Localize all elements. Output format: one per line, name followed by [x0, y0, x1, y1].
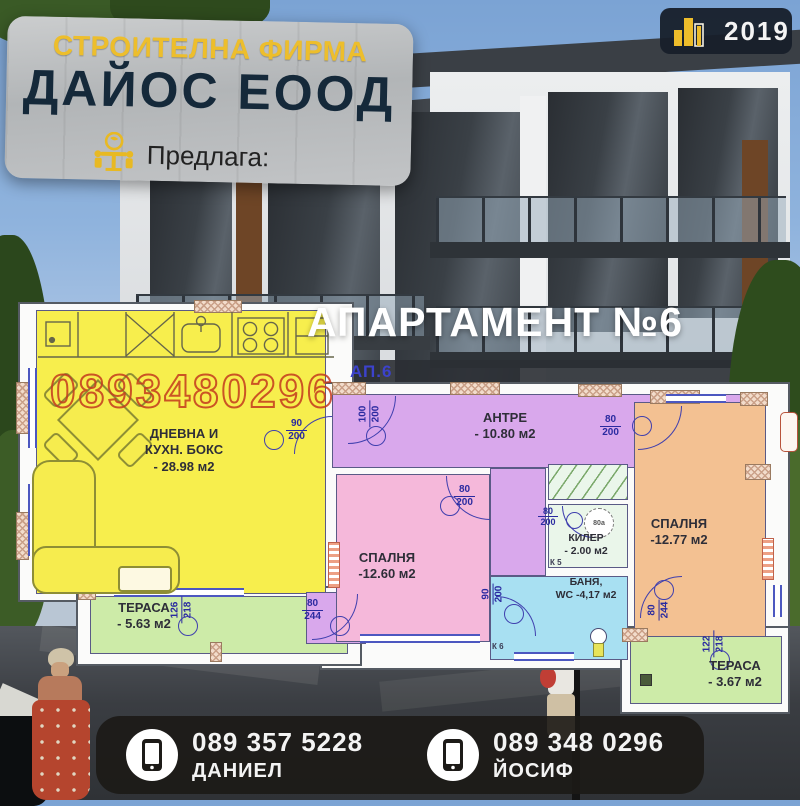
- label-bedroom-2: СПАЛНЯ-12.77 м2: [614, 516, 744, 549]
- wall-pier: [622, 628, 648, 642]
- wall-pier: [578, 384, 622, 397]
- label-hall: АНТРЕ- 10.80 м2: [440, 410, 570, 443]
- label-terrace-left: ТЕРАСА- 5.63 м2: [74, 600, 214, 633]
- floor-plan: 80а 100200 90200 80200 80200 80200 90200…: [14, 298, 794, 714]
- offers-label: Предлага:: [147, 139, 270, 173]
- terrace-planter: [210, 642, 222, 662]
- lamp-symbol: [440, 496, 460, 516]
- builders-crane-icon: [90, 132, 137, 177]
- ac-unit: [780, 412, 798, 452]
- dim-closet-door: 80200: [538, 506, 558, 528]
- lamp-symbol: [264, 430, 284, 450]
- year-badge: 2019: [660, 8, 792, 54]
- label-living: ДНЕВНА ИКУХН. БОКС- 28.98 м2: [104, 426, 264, 475]
- lamp-symbol: [632, 416, 652, 436]
- wall-pier: [745, 464, 771, 480]
- phone-number: 089 348 0296: [493, 728, 664, 757]
- lamp-symbol: [654, 580, 674, 600]
- phone-icon: [427, 729, 479, 781]
- apartment-title: АПАРТАМЕНТ №6: [258, 299, 732, 346]
- dim-terrace2-door: 80244: [647, 599, 671, 620]
- lamp-symbol: [566, 512, 583, 529]
- watermark-phone: 0893480296: [50, 364, 336, 418]
- contact-daniel: 089 357 5228 ДАНИЕЛ: [126, 728, 363, 782]
- label-terrace-right: ТЕРАСА- 3.67 м2: [670, 658, 800, 691]
- label-bath: БАНЯ,WC -4,17 м2: [530, 576, 642, 602]
- radiator: [762, 538, 774, 580]
- contact-bar: 089 357 5228 ДАНИЕЛ 089 348 0296 ЙОСИФ: [96, 716, 704, 794]
- dim-entrance: 100200: [357, 401, 381, 428]
- contact-yosif: 089 348 0296 ЙОСИФ: [427, 728, 664, 782]
- dim-vestibule-door: 80244: [302, 598, 323, 622]
- lamp-symbol: [366, 426, 386, 446]
- dim-living-door: 90200: [286, 418, 307, 442]
- lamp-symbol: [504, 604, 524, 624]
- year-label: 2019: [724, 16, 790, 47]
- window: [514, 652, 574, 661]
- terrace-drain: [640, 674, 652, 686]
- dim-bedroom2-door: 80200: [600, 414, 621, 438]
- plan-note-k5: К 5: [550, 558, 562, 567]
- window: [773, 585, 782, 617]
- company-banner: СТРОИТЕЛНА ФИРМА ДАЙОС ЕООД Предлага:: [4, 16, 413, 186]
- dim-bath-door: 90200: [481, 583, 505, 604]
- apartment-code: АП.6: [350, 362, 392, 382]
- lamp-symbol: [330, 616, 350, 636]
- balcony-slab: [430, 242, 790, 258]
- wall-pier: [332, 382, 366, 395]
- contact-name: ЙОСИФ: [493, 760, 664, 782]
- window: [28, 368, 37, 448]
- buildings-icon: [672, 14, 712, 48]
- contact-name: ДАНИЕЛ: [192, 760, 363, 782]
- label-bedroom-1: СПАЛНЯ-12.60 м2: [322, 550, 452, 583]
- phone-number: 089 357 5228: [192, 728, 363, 757]
- phone-icon: [126, 729, 178, 781]
- plan-note-k6: К 6: [492, 642, 504, 651]
- window: [666, 394, 726, 403]
- wall-pier: [450, 382, 500, 395]
- company-name: ДАЙОС ЕООД: [6, 61, 413, 122]
- room-shaft: [548, 464, 628, 500]
- window: [360, 634, 480, 643]
- balcony-glass: [436, 196, 786, 242]
- wall-pier: [740, 392, 768, 406]
- coffee-table: [118, 566, 172, 592]
- toilet-pedestal: [593, 643, 604, 657]
